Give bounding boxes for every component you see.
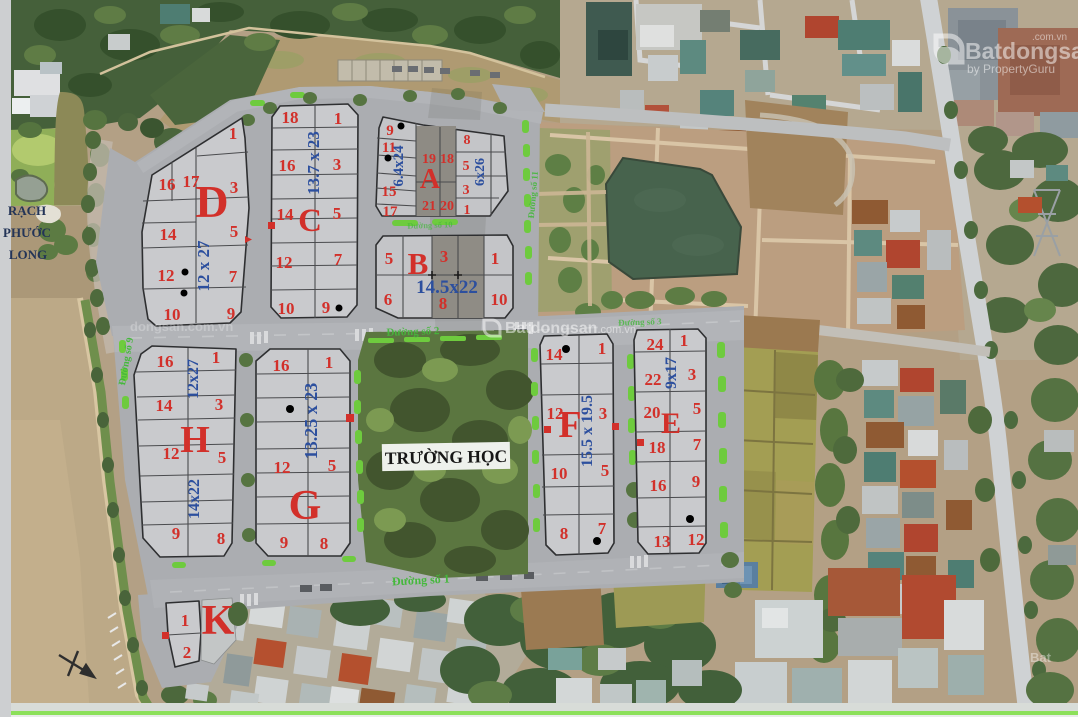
svg-text:13: 13 xyxy=(654,532,671,551)
svg-text:12: 12 xyxy=(274,458,291,477)
svg-text:1: 1 xyxy=(491,249,500,268)
svg-text:D: D xyxy=(195,176,228,227)
svg-text:16: 16 xyxy=(159,175,176,194)
svg-text:5: 5 xyxy=(601,461,610,480)
svg-text:1: 1 xyxy=(181,611,190,630)
svg-text:15.5 x 19.5: 15.5 x 19.5 xyxy=(579,395,596,467)
svg-text:Đường số 2: Đường số 2 xyxy=(386,325,440,339)
svg-text:A: A xyxy=(420,164,441,195)
svg-text:9: 9 xyxy=(172,524,181,543)
svg-text:14: 14 xyxy=(277,205,295,224)
svg-text:20: 20 xyxy=(644,403,661,422)
svg-text:1: 1 xyxy=(680,331,689,350)
svg-text:6: 6 xyxy=(384,290,393,309)
svg-text:14: 14 xyxy=(160,225,178,244)
svg-text:E: E xyxy=(661,407,681,440)
svg-text:10: 10 xyxy=(551,464,568,483)
svg-text:Bat: Bat xyxy=(1030,650,1052,665)
svg-text:12x27: 12x27 xyxy=(185,359,202,399)
svg-text:3: 3 xyxy=(599,404,608,423)
svg-text:16: 16 xyxy=(157,352,174,371)
svg-text:6x26: 6x26 xyxy=(473,158,488,186)
svg-text:1: 1 xyxy=(464,203,471,218)
svg-text:12 x 27: 12 x 27 xyxy=(194,240,213,292)
svg-text:B: B xyxy=(408,246,429,281)
svg-text:.com.vn: .com.vn xyxy=(1032,32,1067,43)
svg-text:16: 16 xyxy=(279,156,296,175)
svg-text:7: 7 xyxy=(334,250,343,269)
svg-text:24: 24 xyxy=(647,335,665,354)
svg-text:5: 5 xyxy=(218,448,227,467)
svg-text:9: 9 xyxy=(692,472,701,491)
svg-text:17: 17 xyxy=(383,204,399,220)
svg-text:7: 7 xyxy=(693,435,702,454)
svg-text:9x17: 9x17 xyxy=(663,357,680,389)
svg-text:1: 1 xyxy=(212,348,221,367)
svg-text:18: 18 xyxy=(649,438,666,457)
svg-text:5: 5 xyxy=(328,456,337,475)
svg-text:9: 9 xyxy=(322,298,331,317)
svg-text:2: 2 xyxy=(183,643,192,662)
svg-text:H: H xyxy=(180,419,210,461)
svg-text:3: 3 xyxy=(688,365,697,384)
svg-text:3: 3 xyxy=(440,247,449,266)
svg-text:6.4x24: 6.4x24 xyxy=(391,145,407,187)
svg-text:8: 8 xyxy=(560,524,569,543)
svg-text:RẠCH: RẠCH xyxy=(8,203,46,218)
svg-text:8: 8 xyxy=(464,133,471,148)
svg-text:9: 9 xyxy=(386,123,394,139)
svg-text:5: 5 xyxy=(463,159,470,174)
svg-text:16: 16 xyxy=(650,476,667,495)
svg-text:18: 18 xyxy=(440,152,454,167)
svg-text:G: G xyxy=(289,483,322,529)
svg-text:PHƯỚC: PHƯỚC xyxy=(3,225,51,240)
svg-text:5: 5 xyxy=(230,222,239,241)
svg-text:8: 8 xyxy=(320,534,329,553)
svg-text:C: C xyxy=(298,203,322,239)
svg-text:7: 7 xyxy=(229,267,238,286)
svg-text:21: 21 xyxy=(422,199,436,214)
svg-text:3: 3 xyxy=(333,155,342,174)
svg-text:13.25 x 23: 13.25 x 23 xyxy=(301,383,321,460)
svg-text:14: 14 xyxy=(546,345,564,364)
svg-text:3: 3 xyxy=(230,178,239,197)
svg-text:22: 22 xyxy=(645,370,662,389)
svg-text:Đường số 10: Đường số 10 xyxy=(407,219,453,231)
svg-text:1: 1 xyxy=(325,353,334,372)
svg-text:12: 12 xyxy=(163,444,180,463)
svg-text:20: 20 xyxy=(440,199,454,214)
svg-text:10: 10 xyxy=(278,299,295,318)
svg-text:13.7 x 23: 13.7 x 23 xyxy=(304,131,323,195)
svg-text:1: 1 xyxy=(334,109,343,128)
svg-text:K: K xyxy=(202,598,235,644)
svg-text:9: 9 xyxy=(280,533,289,552)
svg-text:8: 8 xyxy=(217,529,226,548)
svg-text:5: 5 xyxy=(333,204,342,223)
svg-text:5: 5 xyxy=(693,399,702,418)
svg-text:5: 5 xyxy=(385,249,394,268)
svg-text:3: 3 xyxy=(215,395,224,414)
svg-text:16: 16 xyxy=(273,356,290,375)
svg-text:1: 1 xyxy=(229,124,238,143)
svg-text:18: 18 xyxy=(282,108,299,127)
svg-text:LONG: LONG xyxy=(9,247,47,262)
svg-text:dongsan.com.vn: dongsan.com.vn xyxy=(130,319,233,334)
svg-text:1: 1 xyxy=(598,339,607,358)
svg-text:12: 12 xyxy=(688,530,705,549)
svg-text:by PropertyGuru: by PropertyGuru xyxy=(967,62,1055,76)
svg-text:10: 10 xyxy=(491,290,508,309)
svg-text:14.5x22: 14.5x22 xyxy=(416,277,478,298)
svg-text:14x22: 14x22 xyxy=(186,479,203,519)
svg-text:12: 12 xyxy=(158,266,175,285)
svg-text:12: 12 xyxy=(276,253,293,272)
svg-text:7: 7 xyxy=(598,519,607,538)
svg-text:14: 14 xyxy=(156,396,174,415)
svg-text:TRƯỜNG HỌC: TRƯỜNG HỌC xyxy=(385,446,508,468)
svg-text:3: 3 xyxy=(463,183,470,198)
